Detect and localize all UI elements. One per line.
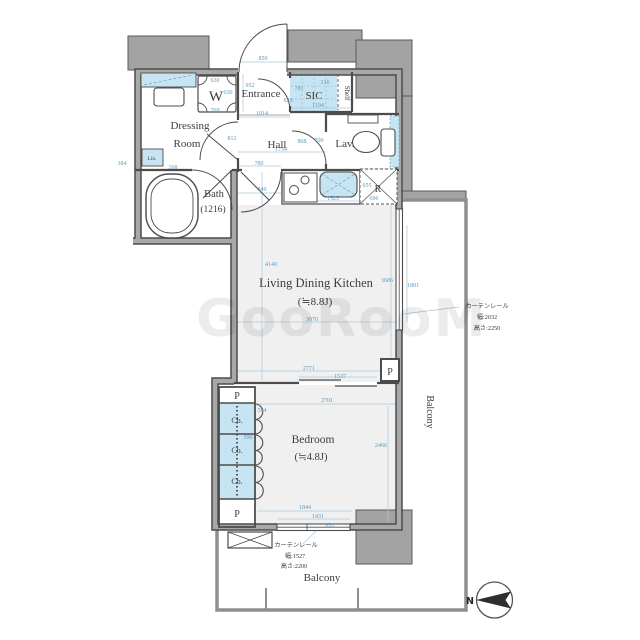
hall-label: Hall: [268, 139, 287, 151]
dimension-1537-26: 1537: [334, 374, 346, 380]
dimension-316-6: 316: [321, 80, 330, 86]
balcony-right-label: Balcony: [424, 395, 435, 428]
lavatory-shelf: [348, 115, 378, 123]
exterior-block-top-center: [288, 30, 362, 62]
dimension-268-16: 268: [169, 165, 178, 171]
dimension-780-14: 780: [255, 161, 264, 167]
entrance-label: Entrance: [241, 88, 280, 100]
toilet-bowl: [353, 132, 380, 153]
exterior-block-top-left: [128, 36, 209, 70]
dimension-629-7: 629: [284, 98, 293, 104]
dimension-812-10: 812: [228, 136, 237, 142]
dimension-2771-25: 2771: [303, 366, 315, 372]
watermark: GooRooM: [196, 289, 487, 349]
dimension-2466-30: 2466: [375, 443, 387, 449]
dimension-584-28: 584: [258, 408, 267, 414]
lavatory-label: Lav.: [335, 138, 354, 150]
dressing-room-label-2: Room: [174, 138, 201, 150]
bath-label-1: Bath: [204, 189, 225, 200]
dimension-630-2: 630: [211, 78, 220, 84]
bedroom-label-1: Bedroom: [292, 434, 335, 446]
dimension-868-11: 868: [298, 139, 307, 145]
balcony-partition-ticks: [266, 588, 358, 610]
pipe-space-top-label: P: [234, 391, 240, 402]
dimension-2701-27: 2701: [321, 398, 333, 404]
pipe-space-bottom-label: P: [234, 509, 240, 520]
closet-label-3: Cb.: [231, 477, 242, 486]
dimension-696-20: 696: [370, 196, 379, 202]
dimension-769-4: 769: [211, 108, 220, 114]
dimension-850-0: 850: [259, 56, 268, 62]
entrance-door: [239, 24, 287, 72]
floor-plan-page: 8509526306307697813166291194101481286870…: [0, 0, 640, 640]
bath-label-2: (1216): [200, 204, 225, 215]
bedroom-label-2: (≒4.8J): [294, 452, 328, 463]
dimension-831-33: 831: [326, 523, 335, 529]
closet-label-1: Cb.: [231, 416, 242, 425]
dressing-room-label-1: Dressing: [170, 120, 210, 132]
closet-label-2: Cb.: [231, 446, 242, 455]
dimension-1194-8: 1194: [312, 103, 324, 109]
stove: [284, 173, 317, 202]
dimension-1014-9: 1014: [256, 111, 268, 117]
dimension-700-12: 700: [315, 138, 324, 144]
kitchen-sink: [320, 172, 357, 197]
dimension-384-15: 384: [118, 161, 127, 167]
balcony-bottom-label: Balcony: [304, 572, 341, 584]
floor-plan: 8509526306307697813166291194101481286870…: [0, 0, 640, 640]
ac-outdoor-unit: [228, 532, 272, 548]
exterior-block-bottom-right: [356, 510, 412, 564]
curtain-rail-bottom-1: カーテンレール: [274, 542, 317, 549]
dimension-1431-32: 1431: [312, 514, 324, 520]
bathtub: [146, 174, 198, 238]
curtain-rail-bottom-2: 幅:1527: [285, 552, 305, 560]
lavatory-door: [292, 131, 326, 165]
linen-label: Lin.: [147, 156, 157, 162]
dimension-630-3: 630: [224, 90, 233, 96]
shelf-label: Shelf: [343, 86, 351, 101]
dimension-4140-21: 4140: [265, 262, 277, 268]
refrigerator-label: R: [375, 184, 382, 195]
toilet-tank: [381, 129, 395, 156]
dimension-849-17: 849: [258, 187, 267, 193]
dimension-1844-31: 1844: [299, 505, 311, 511]
pipe-space-ldk-label: P: [387, 367, 393, 378]
dimension-590-29: 590: [244, 435, 253, 441]
ldk-label-1: Living Dining Kitchen: [259, 276, 374, 290]
dimension-655-19: 655: [363, 183, 372, 189]
north-label: N: [466, 596, 474, 607]
dimension-1525-18: 1525: [327, 196, 339, 202]
dimension-781-5: 781: [295, 86, 304, 92]
sic-label: SIC: [305, 90, 322, 102]
dimension-3686-22: 3686: [381, 278, 393, 284]
washbasin: [154, 88, 184, 106]
washer-label: W: [209, 89, 224, 105]
curtain-rail-bottom-3: 高さ:2200: [281, 562, 307, 570]
north-compass: [476, 582, 513, 618]
